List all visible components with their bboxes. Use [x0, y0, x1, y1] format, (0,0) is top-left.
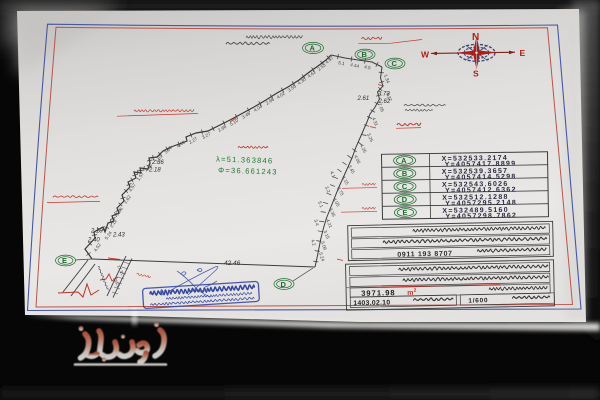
svg-text:1/600: 1/600: [468, 297, 488, 304]
svg-text:W: W: [421, 50, 430, 60]
svg-text:S: S: [473, 69, 479, 79]
svg-text:D: D: [402, 195, 408, 204]
svg-text:2.62: 2.62: [378, 99, 391, 105]
svg-text:2.19: 2.19: [90, 229, 103, 235]
svg-text:0911 193 8707: 0911 193 8707: [397, 251, 453, 259]
svg-text:2: 2: [414, 288, 417, 294]
svg-text:3.73: 3.73: [378, 91, 390, 97]
svg-text:42.46: 42.46: [224, 260, 241, 267]
svg-text:2.43: 2.43: [112, 233, 125, 239]
svg-text:C: C: [402, 182, 408, 191]
svg-text:B: B: [362, 50, 368, 59]
svg-text:E: E: [520, 48, 526, 58]
svg-text:A: A: [310, 44, 316, 53]
svg-text:B: B: [402, 169, 408, 178]
svg-text:E: E: [402, 208, 407, 217]
svg-text:1403.02.10: 1403.02.10: [353, 299, 390, 307]
svg-text:2.36: 2.36: [151, 160, 164, 166]
svg-text:2.18: 2.18: [148, 168, 161, 174]
svg-text:2.61: 2.61: [357, 96, 370, 102]
svg-text:A: A: [401, 156, 407, 165]
svg-text:2.40: 2.40: [87, 238, 100, 244]
svg-text:D: D: [281, 280, 287, 289]
svg-text:C: C: [392, 59, 398, 68]
svg-text:N: N: [472, 32, 479, 43]
svg-text:E: E: [62, 256, 67, 265]
svg-text:Y=4057298.7862: Y=4057298.7862: [445, 212, 517, 220]
